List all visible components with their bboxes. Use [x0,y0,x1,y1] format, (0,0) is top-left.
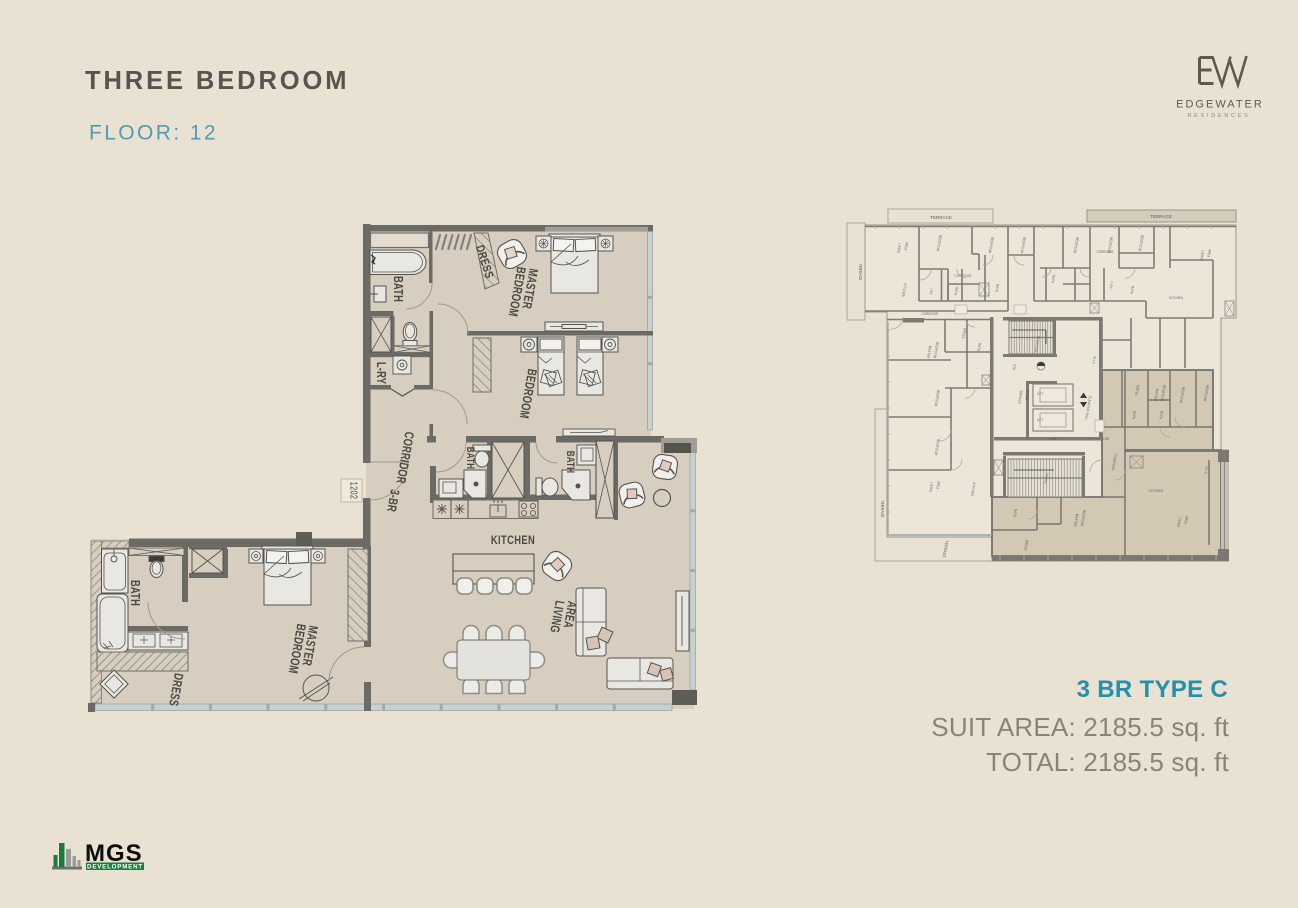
svg-text:TERRACE: TERRACE [858,263,862,280]
svg-text:SUIT AREA: 2185.5 sq. ft: SUIT AREA: 2185.5 sq. ft [931,712,1229,742]
svg-text:TERRACE: TERRACE [1150,214,1172,219]
svg-text:TERRACE: TERRACE [930,215,952,220]
svg-text:BATH: BATH [391,276,405,302]
svg-text:RESIDENCES: RESIDENCES [1187,113,1250,119]
svg-text:TOTAL: 2185.5 sq. ft: TOTAL: 2185.5 sq. ft [986,747,1230,777]
svg-text:LIFT: LIFT [1037,418,1044,422]
svg-text:DEVELOPMENT: DEVELOPMENT [87,864,143,871]
svg-text:BATH: BATH [464,447,477,470]
svg-text:LIFT: LIFT [1037,392,1044,396]
svg-text:CORRIDOR: CORRIDOR [922,312,939,316]
svg-text:3-BR: 3-BR [1049,437,1057,441]
svg-text:FLOOR: 12: FLOOR: 12 [89,122,218,145]
svg-text:TERRACE: TERRACE [880,500,884,517]
svg-text:L-RY: L-RY [374,362,388,385]
svg-text:BATH: BATH [564,451,577,474]
svg-text:KITCHEN: KITCHEN [1169,296,1183,300]
svg-text:BATH: BATH [128,580,142,606]
svg-text:KITCHEN: KITCHEN [1149,489,1163,493]
svg-text:3 BR TYPE C: 3 BR TYPE C [1077,676,1228,703]
svg-text:THREE BEDROOM: THREE BEDROOM [85,67,349,95]
svg-text:2-BR: 2-BR [1102,437,1110,441]
svg-text:1202: 1202 [348,482,359,500]
svg-text:EDGEWATER: EDGEWATER [1176,99,1264,111]
svg-text:KITCHEN: KITCHEN [491,534,535,547]
